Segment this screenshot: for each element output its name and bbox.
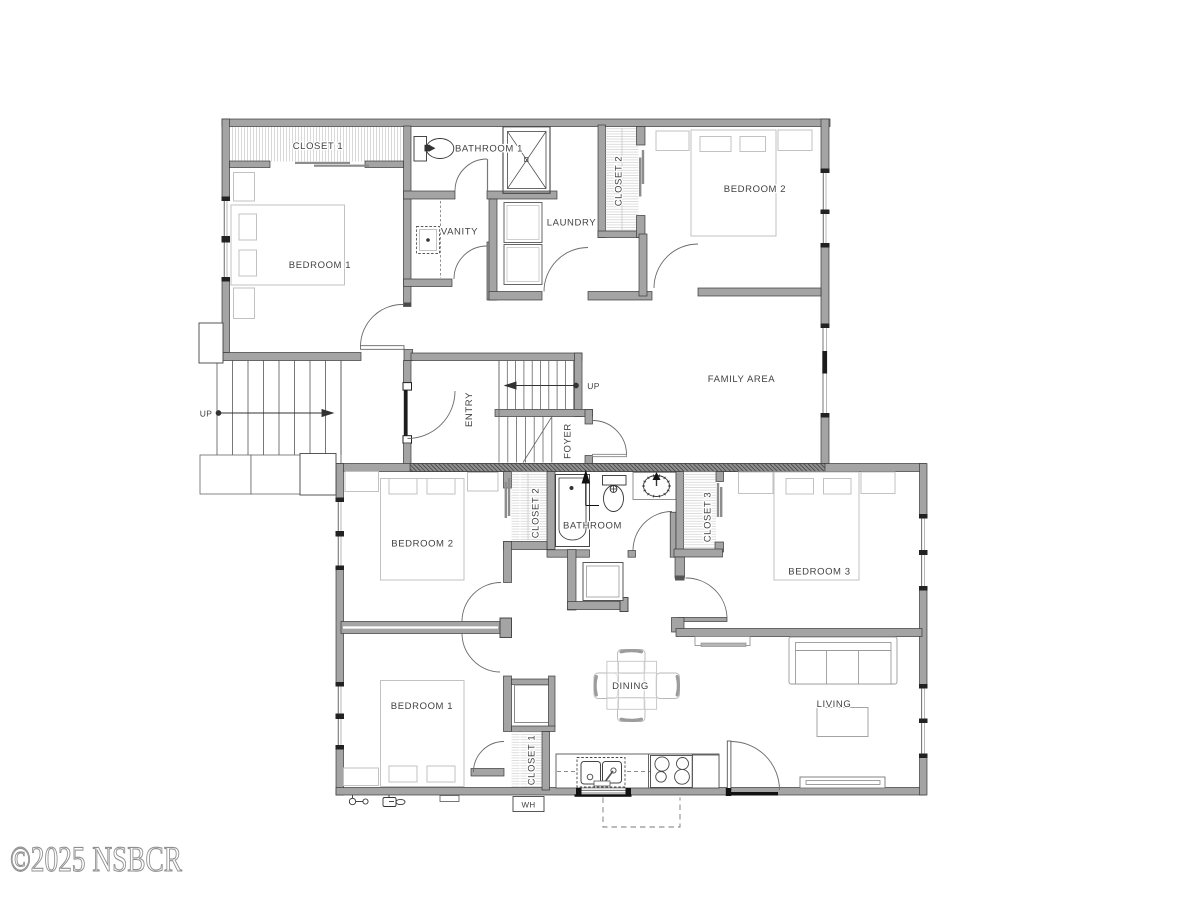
- svg-text:FAMILY AREA: FAMILY AREA: [708, 374, 776, 385]
- svg-text:WH: WH: [522, 801, 536, 810]
- svg-text:CLOSET 1: CLOSET 1: [293, 141, 344, 152]
- svg-text:BATHROOM 1: BATHROOM 1: [455, 144, 523, 155]
- svg-text:CLOSET 2: CLOSET 2: [614, 156, 625, 207]
- svg-text:BEDROOM 2: BEDROOM 2: [724, 184, 786, 195]
- svg-text:BEDROOM 2: BEDROOM 2: [391, 539, 453, 550]
- svg-text:UP: UP: [587, 381, 600, 391]
- svg-text:CLOSET 3: CLOSET 3: [703, 492, 714, 543]
- svg-text:CLOSET 1: CLOSET 1: [527, 735, 538, 786]
- svg-text:LIVING: LIVING: [817, 699, 852, 710]
- svg-text:UP: UP: [200, 408, 213, 418]
- svg-text:CLOSET 2: CLOSET 2: [531, 488, 542, 539]
- svg-text:BEDROOM 1: BEDROOM 1: [391, 701, 453, 712]
- svg-text:DINING: DINING: [612, 681, 649, 692]
- svg-text:BEDROOM 1: BEDROOM 1: [289, 260, 351, 271]
- svg-text:LAUNDRY: LAUNDRY: [547, 218, 596, 229]
- svg-text:FOYER: FOYER: [563, 423, 574, 459]
- svg-text:©2025 NSBCR: ©2025 NSBCR: [10, 839, 182, 879]
- svg-text:BATHROOM: BATHROOM: [563, 521, 622, 532]
- svg-text:BEDROOM 3: BEDROOM 3: [788, 567, 850, 578]
- svg-text:ENTRY: ENTRY: [464, 392, 475, 427]
- svg-text:VANITY: VANITY: [441, 227, 478, 238]
